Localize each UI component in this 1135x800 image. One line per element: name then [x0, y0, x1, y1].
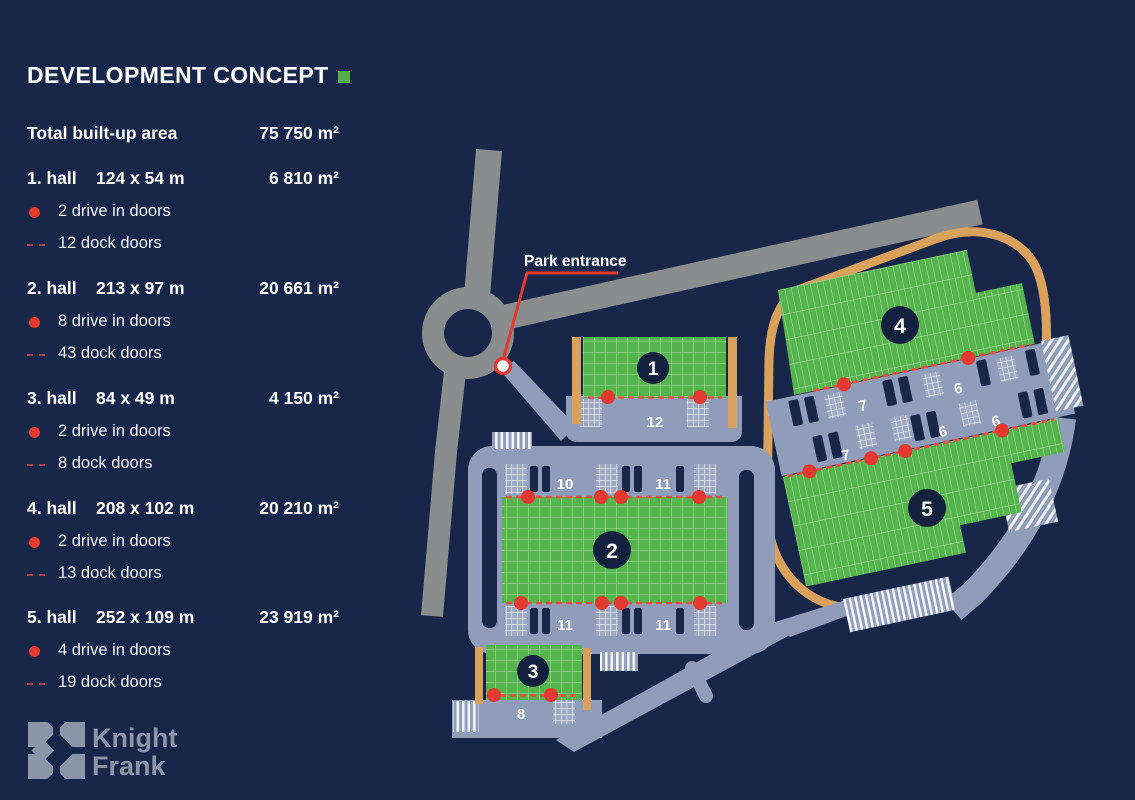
- drive-in-doors: 4 drive in doors: [58, 641, 171, 660]
- drive-in-bullet-icon: [29, 317, 40, 328]
- hall-item-2: 2. hall 213 x 97 m 20 661 m² 8 drive in …: [27, 278, 339, 300]
- road-north: [477, 150, 489, 296]
- dock-doors: 43 dock doors: [58, 344, 162, 363]
- landscape-strip: [728, 337, 737, 428]
- logo-line1: Knight: [92, 724, 177, 752]
- hall-area: 23 919 m²: [259, 607, 339, 628]
- dock-bullet-icon: [27, 244, 45, 246]
- parking-strip: [492, 432, 532, 449]
- hall-name: 3. hall: [27, 388, 77, 408]
- hall-dimensions: 213 x 97 m: [96, 278, 185, 299]
- dock-doors: 8 dock doors: [58, 454, 152, 473]
- knight-frank-mark-icon: [28, 722, 85, 779]
- drive-in-doors: 2 drive in doors: [58, 422, 171, 441]
- total-area-value: 75 750 m²: [259, 123, 339, 144]
- hall-marker-4: 4: [894, 315, 906, 338]
- park-entrance-dot: [496, 359, 511, 374]
- svg-text:8: 8: [517, 706, 525, 723]
- drive-in-bullet-icon: [29, 427, 40, 438]
- hall-name: 4. hall: [27, 498, 77, 518]
- svg-text:11: 11: [655, 476, 671, 493]
- hall-dimensions: 252 x 109 m: [96, 607, 194, 628]
- hall-item-4: 4. hall 208 x 102 m 20 210 m² 2 drive in…: [27, 498, 339, 520]
- title-accent-square: [338, 71, 350, 83]
- dock-doors: 19 dock doors: [58, 673, 162, 692]
- page-title-text: DEVELOPMENT CONCEPT: [27, 62, 329, 88]
- hall-dimensions: 124 x 54 m: [96, 168, 185, 189]
- svg-text:10: 10: [557, 476, 574, 493]
- parking-strip: [453, 701, 479, 732]
- parking-strip: [600, 652, 638, 671]
- hall-area: 6 810 m²: [269, 168, 339, 189]
- dock-doors: 13 dock doors: [58, 564, 162, 583]
- roundabout-island: [444, 309, 492, 357]
- hall-name: 1. hall: [27, 168, 77, 188]
- logo-line2: Frank: [92, 752, 177, 780]
- road-southwest: [432, 372, 455, 616]
- dock-bullet-icon: [27, 683, 45, 685]
- drive-in-doors: 8 drive in doors: [58, 312, 171, 331]
- hall-area: 20 661 m²: [259, 278, 339, 299]
- page-title: DEVELOPMENT CONCEPT: [27, 62, 350, 89]
- dock-bullet-icon: [27, 464, 45, 466]
- hall-marker-3: 3: [528, 662, 539, 683]
- road-boundary-link: [775, 600, 852, 637]
- svg-text:11: 11: [655, 617, 671, 634]
- svg-text:12: 12: [647, 414, 664, 431]
- landscape-strip: [475, 647, 483, 704]
- dock-bullet-icon: [27, 574, 45, 576]
- landscape-strip: [583, 648, 591, 710]
- hall-marker-2: 2: [606, 540, 618, 563]
- drive-in-bullet-icon: [29, 207, 40, 218]
- hall-item-3: 3. hall 84 x 49 m 4 150 m² 2 drive in do…: [27, 388, 339, 410]
- dock-doors: 12 dock doors: [58, 234, 162, 253]
- hall-name: 2. hall: [27, 278, 77, 298]
- drive-in-bullet-icon: [29, 646, 40, 657]
- hall-name: 5. hall: [27, 607, 77, 627]
- entrance-ramp: [499, 361, 576, 441]
- knight-frank-wordmark: Knight Frank: [92, 724, 177, 780]
- total-area-row: Total built-up area 75 750 m²: [27, 123, 339, 144]
- drive-in-bullet-icon: [29, 537, 40, 548]
- dock-bullet-icon: [27, 354, 45, 356]
- hall-area: 20 210 m²: [259, 498, 339, 519]
- hall-dimensions: 208 x 102 m: [96, 498, 194, 519]
- hall-dimensions: 84 x 49 m: [96, 388, 175, 409]
- hall-marker-5: 5: [921, 498, 933, 521]
- svg-text:11: 11: [557, 617, 573, 634]
- hall-area: 4 150 m²: [269, 388, 339, 409]
- park-entrance-label: Park entrance: [524, 253, 627, 270]
- hall-item-5: 5. hall 252 x 109 m 23 919 m² 4 drive in…: [27, 607, 339, 629]
- parking-strip: [843, 577, 956, 633]
- landscape-strip: [572, 337, 581, 424]
- hall-marker-1: 1: [648, 359, 659, 380]
- total-area-label: Total built-up area: [27, 123, 177, 143]
- hall-item-1: 1. hall 124 x 54 m 6 810 m² 2 drive in d…: [27, 168, 339, 190]
- drive-in-doors: 2 drive in doors: [58, 202, 171, 221]
- drive-in-doors: 2 drive in doors: [58, 532, 171, 551]
